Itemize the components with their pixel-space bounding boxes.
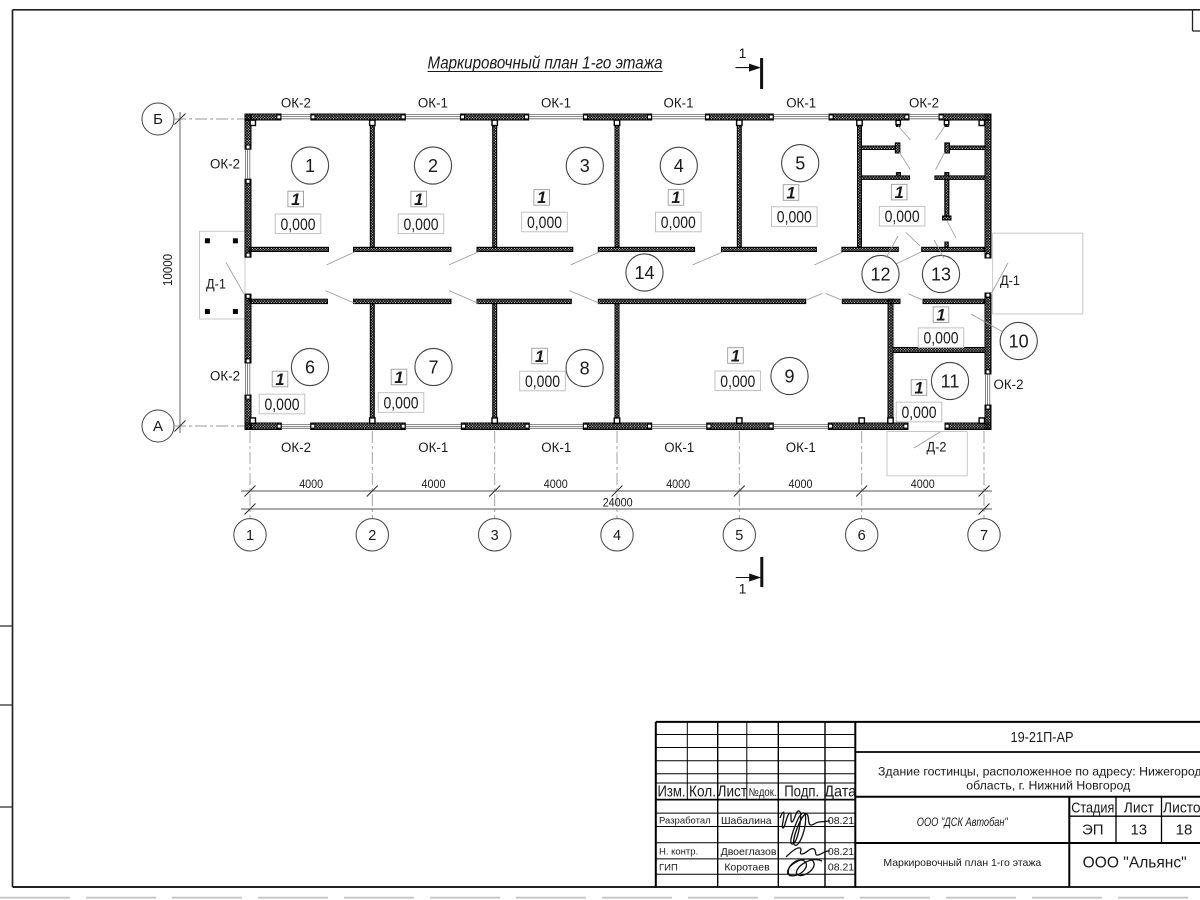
svg-text:1: 1 <box>739 581 747 597</box>
svg-text:1: 1 <box>936 307 945 325</box>
svg-text:5: 5 <box>735 528 743 544</box>
svg-text:11: 11 <box>941 371 960 391</box>
svg-text:7: 7 <box>428 357 438 377</box>
svg-text:13: 13 <box>931 264 951 284</box>
svg-text:10000: 10000 <box>161 254 175 286</box>
svg-text:24000: 24000 <box>603 498 633 510</box>
svg-text:4000: 4000 <box>666 479 690 491</box>
svg-text:Д-2: Д-2 <box>927 440 947 455</box>
svg-text:Лист: Лист <box>1124 801 1154 817</box>
svg-text:0,000: 0,000 <box>265 395 300 414</box>
svg-text:3: 3 <box>580 156 590 176</box>
svg-text:5: 5 <box>795 154 805 174</box>
svg-text:14: 14 <box>634 263 654 283</box>
svg-text:ОК-2: ОК-2 <box>210 157 240 172</box>
svg-text:ООО "ДСК Автобан": ООО "ДСК Автобан" <box>917 815 1009 829</box>
svg-text:1: 1 <box>535 348 544 366</box>
svg-text:Маркировочный план 1-го этажа: Маркировочный план 1-го этажа <box>883 857 1041 869</box>
svg-text:ОК-2: ОК-2 <box>281 440 311 455</box>
svg-text:4000: 4000 <box>544 479 568 491</box>
svg-text:9: 9 <box>784 366 794 386</box>
svg-text:1: 1 <box>786 184 795 202</box>
svg-text:ГИП: ГИП <box>659 862 678 873</box>
svg-text:1: 1 <box>895 184 904 202</box>
svg-text:0,000: 0,000 <box>384 394 419 413</box>
svg-text:4000: 4000 <box>911 479 935 491</box>
svg-text:0,000: 0,000 <box>885 207 920 226</box>
svg-text:6: 6 <box>305 357 315 377</box>
svg-text:Д-1: Д-1 <box>206 277 226 292</box>
svg-text:1: 1 <box>731 347 740 365</box>
svg-text:ОК-1: ОК-1 <box>418 440 448 455</box>
svg-text:4000: 4000 <box>299 479 323 491</box>
svg-text:Коротаев: Коротаев <box>724 862 770 874</box>
svg-text:08.21: 08.21 <box>828 815 854 827</box>
svg-text:ООО "Альянс": ООО "Альянс" <box>1083 855 1187 872</box>
svg-text:0,000: 0,000 <box>924 329 959 348</box>
svg-text:1: 1 <box>739 45 747 61</box>
svg-text:ОК-2: ОК-2 <box>994 377 1024 392</box>
svg-text:Разработал: Разработал <box>659 816 711 827</box>
svg-text:№док.: №док. <box>749 787 777 799</box>
svg-text:7: 7 <box>980 528 988 544</box>
svg-text:ОК-2: ОК-2 <box>909 96 939 111</box>
svg-text:1: 1 <box>305 156 315 176</box>
svg-text:2: 2 <box>368 528 376 544</box>
svg-text:ОК-1: ОК-1 <box>541 96 571 111</box>
svg-text:08.21: 08.21 <box>828 846 854 858</box>
svg-text:1: 1 <box>246 528 254 544</box>
svg-text:1: 1 <box>291 191 300 209</box>
svg-text:12: 12 <box>870 264 890 284</box>
svg-text:А: А <box>153 418 163 435</box>
svg-text:08.21: 08.21 <box>828 862 854 874</box>
svg-text:ЭП: ЭП <box>1082 822 1104 839</box>
svg-text:4000: 4000 <box>789 479 813 491</box>
svg-text:0,000: 0,000 <box>281 215 316 234</box>
svg-text:0,000: 0,000 <box>404 215 439 234</box>
svg-text:ОК-1: ОК-1 <box>786 440 816 455</box>
svg-text:18: 18 <box>1176 822 1193 839</box>
svg-text:0,000: 0,000 <box>777 208 812 227</box>
svg-text:Лист: Лист <box>718 784 748 801</box>
svg-text:ОК-2: ОК-2 <box>210 369 240 384</box>
svg-text:4: 4 <box>613 528 621 544</box>
svg-text:Стадия: Стадия <box>1071 801 1114 817</box>
svg-text:область, г. Нижний Новгород: область, г. Нижний Новгород <box>966 779 1130 793</box>
svg-text:Шабалина: Шабалина <box>721 815 772 827</box>
svg-text:2: 2 <box>428 156 438 176</box>
svg-text:1: 1 <box>275 371 284 389</box>
svg-text:1: 1 <box>537 189 546 207</box>
svg-text:Кол.: Кол. <box>689 784 716 801</box>
svg-text:ОК-1: ОК-1 <box>418 96 448 111</box>
svg-text:ОК-1: ОК-1 <box>664 440 694 455</box>
svg-text:0,000: 0,000 <box>525 372 560 391</box>
svg-text:0,000: 0,000 <box>527 213 562 232</box>
svg-text:1: 1 <box>414 191 423 209</box>
svg-text:0,000: 0,000 <box>902 403 937 422</box>
svg-text:Дата: Дата <box>824 784 856 801</box>
svg-text:4000: 4000 <box>422 479 446 491</box>
svg-text:Подп.: Подп. <box>784 784 819 801</box>
svg-text:4: 4 <box>674 156 684 176</box>
svg-text:1: 1 <box>394 369 403 387</box>
svg-text:1: 1 <box>914 379 923 397</box>
svg-text:10: 10 <box>1009 331 1029 351</box>
svg-text:0,000: 0,000 <box>720 372 755 391</box>
svg-text:Б: Б <box>153 111 163 128</box>
svg-text:8: 8 <box>580 358 590 378</box>
svg-text:Здание гостинцы, расположенное: Здание гостинцы, расположенное по адресу… <box>878 765 1200 779</box>
svg-text:ОК-2: ОК-2 <box>281 96 311 111</box>
svg-text:ОК-1: ОК-1 <box>664 96 694 111</box>
svg-text:6: 6 <box>858 528 866 544</box>
svg-text:Изм.: Изм. <box>658 784 686 801</box>
svg-text:Д-1: Д-1 <box>1000 273 1020 288</box>
svg-text:ОК-1: ОК-1 <box>541 440 571 455</box>
svg-text:1: 1 <box>671 189 680 207</box>
svg-text:Листов: Листов <box>1163 801 1200 817</box>
svg-text:3: 3 <box>491 528 499 544</box>
svg-text:Двоеглазов: Двоеглазов <box>721 846 777 858</box>
svg-text:0,000: 0,000 <box>661 213 696 232</box>
svg-text:19-21П-АР: 19-21П-АР <box>1011 729 1074 746</box>
svg-text:13: 13 <box>1130 822 1147 839</box>
svg-text:Н. контр.: Н. контр. <box>659 847 698 858</box>
svg-text:ОК-1: ОК-1 <box>786 96 816 111</box>
svg-text:Маркировочный план 1-го этажа: Маркировочный план 1-го этажа <box>428 53 663 73</box>
